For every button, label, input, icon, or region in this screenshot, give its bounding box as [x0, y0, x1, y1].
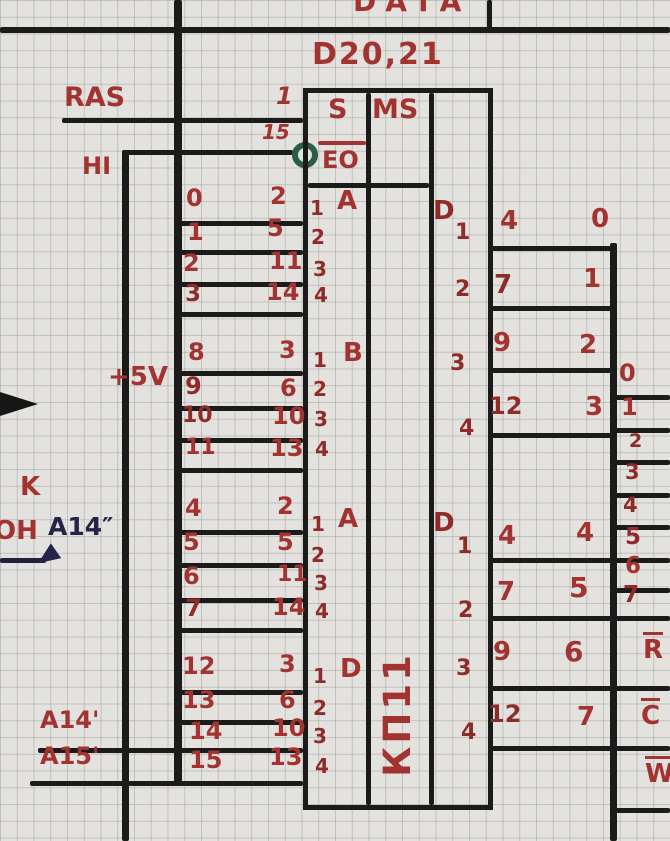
top-tick-wire: [487, 0, 492, 32]
chip-input-index: 2: [313, 379, 327, 399]
chip-input-index: 3: [313, 259, 327, 279]
signal-label: 15: [189, 748, 222, 772]
chip-input-index: 4: [315, 439, 329, 459]
control-line-label-we: W: [645, 756, 670, 787]
bus-line-label: 1: [621, 395, 638, 419]
ras-label: RAS: [64, 84, 125, 111]
output-wire: [488, 368, 612, 373]
bus-line-label: 4: [623, 495, 638, 516]
a14-prime-label: A14': [40, 708, 99, 732]
pin-number: 5: [267, 216, 284, 240]
pin-number: 10: [272, 404, 305, 428]
input-wire-a15: [30, 781, 303, 786]
pin-number: 4: [498, 523, 516, 549]
chip-output-index: 2: [455, 279, 470, 301]
output-wire: [488, 433, 612, 438]
pin-number: 10: [272, 716, 305, 740]
bus-vertical-line: [610, 243, 617, 841]
select-pin-bottom: 15: [262, 122, 290, 142]
mux-out-label: 3: [585, 394, 603, 420]
signal-label: 2: [183, 251, 200, 275]
pin-number: 14: [266, 280, 299, 304]
pin-number: 14: [272, 595, 305, 619]
mux-out-label: 2: [579, 332, 597, 358]
signal-label: 11: [185, 437, 216, 459]
pin-number: 5: [277, 530, 294, 554]
output-group-letter: D: [433, 198, 455, 224]
hi-wire: [122, 150, 293, 155]
mux-out-label: 4: [576, 520, 594, 546]
pin-number: 13: [270, 436, 303, 460]
chip-pin-eo-label: EO: [322, 148, 359, 172]
control-line-label-ras: R: [643, 632, 663, 663]
mux-out-label: 0: [591, 206, 609, 232]
mux-out-label: 5: [569, 574, 588, 602]
pin-number: 6: [279, 688, 296, 712]
a14-sec-label: A14″: [48, 514, 113, 539]
signal-label: 10: [182, 405, 213, 427]
bus-line-label: 5: [625, 526, 641, 549]
chip-output-index: 4: [459, 418, 474, 440]
chip-designator: D20,21: [312, 40, 444, 70]
chip-input-index: 2: [311, 545, 325, 565]
output-wire: [488, 246, 612, 251]
chip-type-text: КП11: [376, 652, 419, 777]
plus5v-arrow-icon: [0, 392, 38, 416]
schematic-sheet: DATA D20,21 RAS 1 15 HI S EO MS КП11 0 1…: [0, 0, 670, 841]
s-eo-fraction-bar: [318, 141, 366, 145]
pin-number: 7: [497, 579, 515, 605]
control-line-label-cas: C: [641, 698, 660, 729]
chip-input-index: 1: [311, 514, 325, 534]
input-wire: [179, 312, 303, 317]
signal-label: 4: [185, 496, 202, 520]
mux-out-label: 6: [564, 638, 583, 666]
signal-label: 9: [185, 374, 202, 398]
connector-wire: [615, 525, 670, 530]
signal-label: 7: [185, 596, 202, 620]
pin-number: 11: [269, 249, 302, 273]
top-bus-rule: [0, 27, 670, 33]
chip-input-index: 4: [314, 285, 328, 305]
signal-label: 8: [188, 340, 205, 364]
pin-number: 2: [270, 184, 287, 208]
chip-output-index: 1: [457, 536, 472, 558]
on-label: ОН: [0, 518, 38, 544]
pin-number: 9: [493, 639, 511, 665]
connector-wire: [615, 428, 670, 433]
group-letter: A: [338, 506, 358, 532]
pin-number: 3: [279, 338, 296, 362]
pin-number: 11: [277, 564, 308, 586]
pin-number: 2: [277, 494, 294, 518]
chip-input-index: 3: [314, 409, 328, 429]
chip-input-index: 4: [315, 756, 329, 776]
input-wire: [179, 468, 303, 473]
a14-arrowhead-icon: [33, 543, 61, 570]
signal-label: 0: [186, 186, 203, 210]
signal-label: 13: [182, 688, 215, 712]
pin-number: 4: [500, 208, 518, 234]
output-wire: [488, 558, 670, 563]
pin-number: 6: [280, 376, 297, 400]
chip-output-index: 2: [458, 600, 473, 622]
chip-type-label: КП11: [362, 630, 432, 798]
chip-input-index: 1: [310, 198, 324, 218]
chip-input-index: 1: [313, 666, 327, 686]
chip-input-index: 2: [311, 227, 325, 247]
k-label: K: [20, 474, 40, 500]
signal-label: 14: [189, 719, 222, 743]
output-group-letter: D: [433, 510, 455, 536]
chip-pin-ms-label: MS: [372, 96, 418, 123]
chip-output-index: 1: [455, 222, 470, 244]
mux-out-label: 7: [577, 704, 595, 730]
pin-number: 13: [269, 745, 302, 769]
chip-output-index: 3: [456, 658, 471, 680]
chip-input-index: 1: [313, 350, 327, 370]
chip-input-index: 4: [315, 601, 329, 621]
chip-input-index: 2: [313, 698, 327, 718]
vertical-rail-left: [122, 150, 129, 841]
bus-line-label: 2: [629, 432, 642, 451]
data-bus-label: DATA: [353, 0, 470, 16]
signal-label: 3: [185, 283, 201, 306]
chip-header-rule: [308, 183, 429, 188]
bus-line-label: 3: [625, 462, 640, 483]
signal-label: 5: [183, 530, 200, 554]
mux-out-label: 1: [583, 266, 601, 292]
signal-label: 6: [183, 564, 200, 588]
pin-number: 12: [488, 702, 521, 726]
bus-line-label: 7: [623, 584, 639, 607]
pin-number: 9: [493, 330, 511, 356]
group-letter: D: [340, 656, 362, 682]
bus-line-label: 0: [619, 361, 636, 385]
chip-output-index: 3: [450, 353, 465, 375]
chip-output-index: 4: [461, 722, 476, 744]
connector-wire: [615, 808, 670, 813]
chip-input-index: 3: [313, 726, 327, 746]
group-letter: B: [343, 340, 363, 366]
a15-prime-label: A15': [40, 744, 99, 768]
output-wire: [488, 616, 670, 621]
select-pin-top: 1: [276, 84, 293, 108]
input-wire: [179, 628, 303, 633]
connector-wire: [615, 460, 670, 465]
pin-number: 3: [279, 652, 296, 676]
bus-line-label: 6: [625, 555, 641, 578]
plus5v-label: +5V: [108, 364, 168, 390]
output-wire: [488, 686, 670, 691]
hi-label: HI: [82, 154, 111, 178]
chip-pin-s-label: S: [328, 96, 347, 123]
group-letter: A: [337, 188, 357, 214]
signal-label: 1: [187, 220, 204, 244]
pin-number: 7: [494, 272, 512, 298]
signal-label: 12: [182, 654, 215, 678]
output-wire: [488, 746, 670, 751]
pin-number: 12: [489, 394, 522, 418]
chip-input-index: 3: [314, 573, 328, 593]
output-wire: [488, 306, 612, 311]
